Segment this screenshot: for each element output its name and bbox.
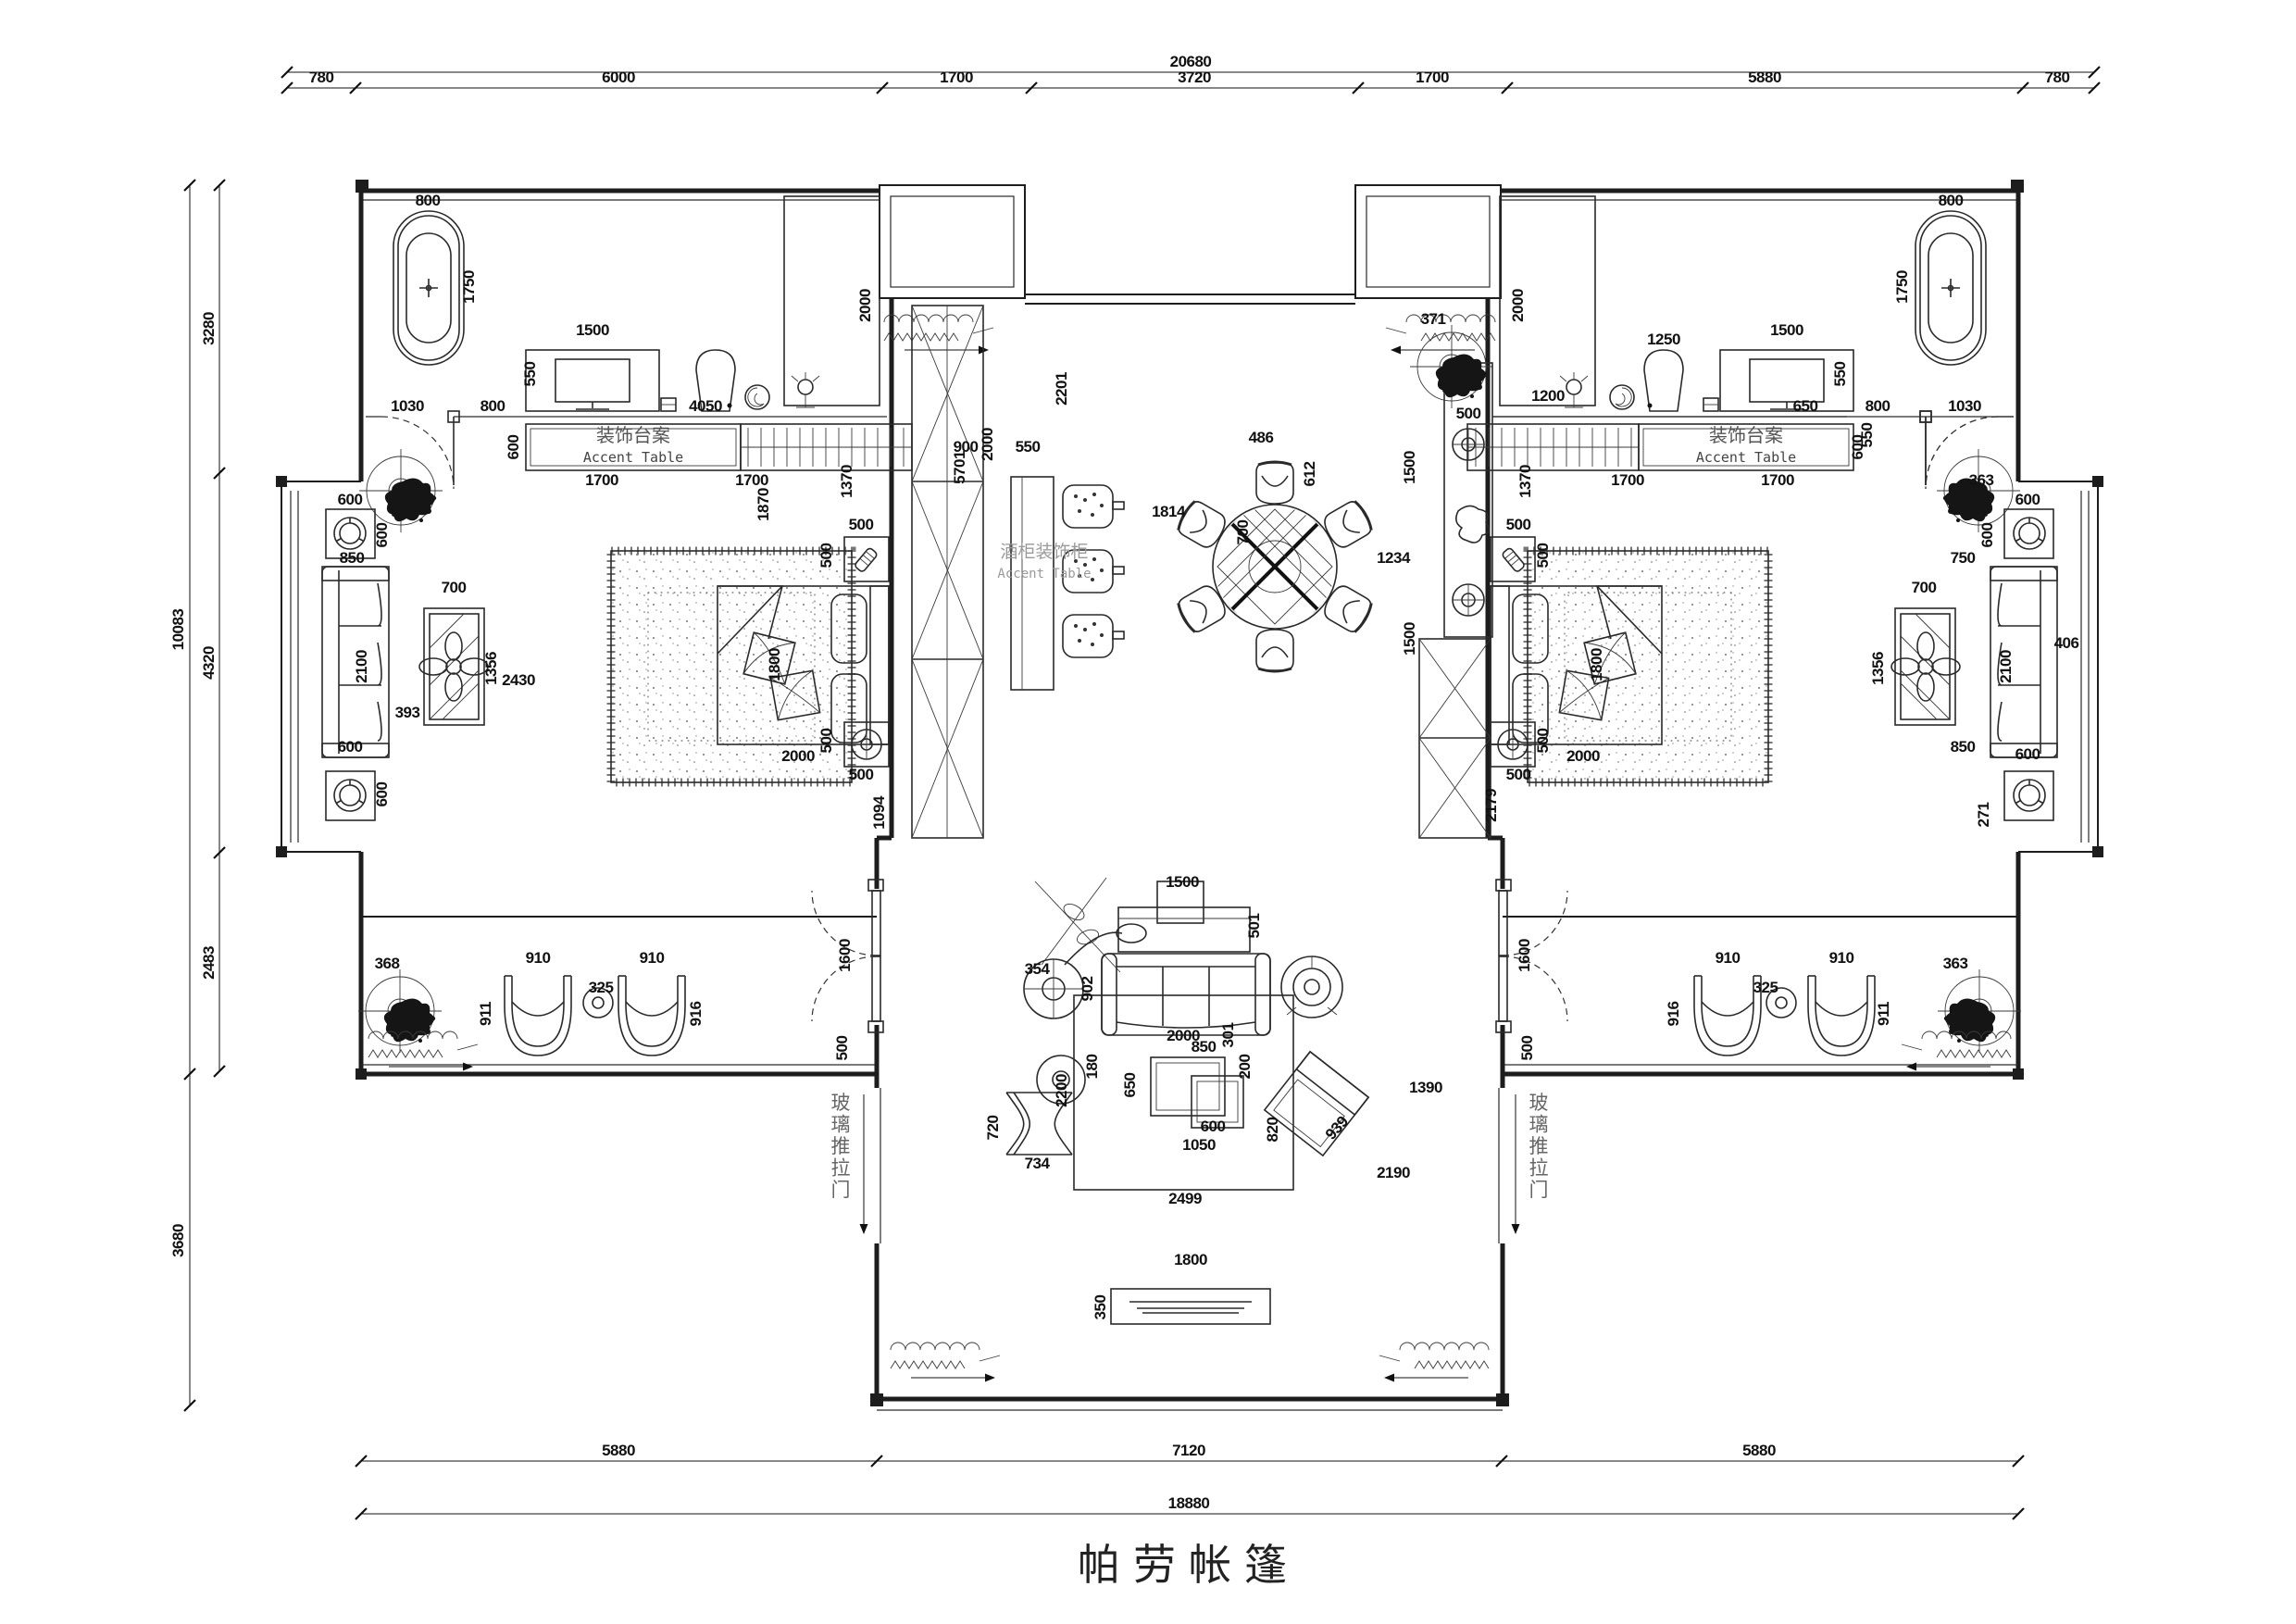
dim-label: 600 bbox=[338, 738, 363, 756]
dim-label: 2179 bbox=[1482, 789, 1500, 822]
dim-label: 910 bbox=[1716, 949, 1741, 967]
dim-label: 500 bbox=[849, 516, 874, 533]
dim-label: 600 bbox=[338, 491, 363, 508]
dim-label: 1500 bbox=[576, 321, 609, 339]
dim-label: 325 bbox=[589, 979, 614, 996]
room-label: 装饰台案 bbox=[1709, 424, 1783, 446]
dim-label: 1370 bbox=[1516, 465, 1534, 498]
dim-label: 1800 bbox=[1588, 648, 1605, 681]
dim-label: 3680 bbox=[169, 1224, 187, 1257]
dim-label: 720 bbox=[984, 1116, 1002, 1141]
dim-label: 6000 bbox=[602, 69, 635, 86]
dim-label: 2000 bbox=[781, 747, 815, 765]
dim-label: 500 bbox=[1518, 1036, 1536, 1061]
dim-label: 2499 bbox=[1168, 1190, 1202, 1207]
dim-label: 2100 bbox=[1997, 650, 2015, 683]
dim-label: 700 bbox=[442, 579, 467, 596]
dim-label: 1700 bbox=[735, 471, 768, 489]
dim-label: 750 bbox=[1951, 549, 1976, 567]
dim-label: 7120 bbox=[1172, 1442, 1205, 1459]
dim-label: 2000 bbox=[979, 428, 996, 461]
dim-label: 500 bbox=[849, 766, 874, 783]
drawing-title: 帕劳帐篷 bbox=[1078, 1540, 1300, 1590]
dim-label: 5880 bbox=[1748, 69, 1781, 86]
dim-label: 2201 bbox=[1053, 372, 1070, 406]
dim-label: 780 bbox=[309, 69, 334, 86]
dim-label: 1700 bbox=[1761, 471, 1794, 489]
dim-label: 1750 bbox=[1893, 270, 1911, 304]
dim-label: 1700 bbox=[940, 69, 973, 86]
dim-label: 1050 bbox=[1182, 1136, 1216, 1154]
dim-label: 910 bbox=[1829, 949, 1854, 967]
dim-label: 406 bbox=[2054, 634, 2079, 652]
dim-label: 1700 bbox=[585, 471, 618, 489]
dim-label: 600 bbox=[2015, 745, 2040, 763]
dim-label: 1370 bbox=[838, 465, 855, 498]
dim-label: 780 bbox=[2045, 69, 2070, 86]
dim-label: 1200 bbox=[1531, 387, 1565, 405]
dim-label: 600 bbox=[2015, 491, 2040, 508]
dim-label: 1500 bbox=[1770, 321, 1803, 339]
dim-label: 2430 bbox=[502, 671, 535, 689]
dim-label: 911 bbox=[1875, 1002, 1892, 1026]
room-label: Accent Table bbox=[1696, 449, 1796, 466]
dim-label: 550 bbox=[521, 362, 539, 387]
dim-label: 800 bbox=[1865, 397, 1890, 415]
dim-label: 1030 bbox=[1948, 397, 1981, 415]
dim-label: 1500 bbox=[1401, 622, 1418, 656]
dim-label: 1500 bbox=[1166, 873, 1199, 891]
dim-label: 800 bbox=[1939, 192, 1964, 209]
dim-label: 612 bbox=[1301, 462, 1318, 487]
dim-label: 1814 bbox=[1152, 503, 1186, 520]
dim-label: 850 bbox=[1192, 1038, 1217, 1056]
dim-label: 500 bbox=[1534, 543, 1552, 568]
dim-label: 600 bbox=[1978, 523, 1996, 548]
room-label: 玻璃推拉门 bbox=[831, 1092, 851, 1201]
dim-label: 820 bbox=[1264, 1118, 1281, 1143]
dim-label: 2100 bbox=[353, 650, 370, 683]
dim-label: 1390 bbox=[1409, 1079, 1442, 1096]
dim-label: 325 bbox=[1753, 979, 1778, 996]
dim-label: 500 bbox=[1506, 516, 1531, 533]
dim-label: 916 bbox=[1665, 1002, 1682, 1027]
dim-label: 734 bbox=[1025, 1155, 1051, 1172]
dim-label: 550 bbox=[1016, 438, 1041, 456]
dim-label: 500 bbox=[1456, 405, 1481, 422]
dim-label: 4320 bbox=[200, 646, 218, 680]
dim-label: 501 bbox=[1245, 914, 1263, 939]
room-label: 装饰台案 bbox=[596, 424, 670, 446]
dim-label: 271 bbox=[1975, 803, 1992, 828]
dim-label: 5880 bbox=[1742, 1442, 1776, 1459]
dim-label: 1356 bbox=[482, 652, 500, 685]
dim-label: 3280 bbox=[200, 312, 218, 345]
dim-label: 2000 bbox=[1566, 747, 1600, 765]
dim-label: 800 bbox=[480, 397, 505, 415]
dim-label: 600 bbox=[373, 523, 391, 548]
dim-label: 902 bbox=[1079, 977, 1096, 1002]
dim-label: 180 bbox=[1083, 1055, 1101, 1080]
dim-label: 600 bbox=[373, 782, 391, 807]
dim-label: 1600 bbox=[1516, 939, 1533, 972]
dim-label: 5701 bbox=[951, 451, 968, 484]
dim-label: 916 bbox=[687, 1002, 705, 1027]
room-label: 玻璃推拉门 bbox=[1529, 1092, 1549, 1201]
dim-label: 910 bbox=[640, 949, 665, 967]
dim-label: 350 bbox=[1092, 1295, 1109, 1320]
dim-label: 910 bbox=[526, 949, 551, 967]
dim-label: 10083 bbox=[169, 609, 187, 651]
dim-label: 2000 bbox=[1509, 289, 1527, 322]
dim-label: 800 bbox=[416, 192, 441, 209]
dim-label: 1030 bbox=[391, 397, 424, 415]
dim-label: 911 bbox=[477, 1002, 494, 1026]
dim-label: 363 bbox=[1943, 955, 1968, 972]
dim-label: 500 bbox=[817, 543, 835, 568]
dim-label: 650 bbox=[1793, 397, 1818, 415]
dim-label: 1800 bbox=[766, 648, 783, 681]
dim-label: 2483 bbox=[200, 946, 218, 980]
dim-label: 1250 bbox=[1647, 331, 1680, 348]
dim-label: 1750 bbox=[460, 270, 478, 304]
dim-label: 850 bbox=[1951, 738, 1976, 756]
dim-label: 900 bbox=[954, 438, 979, 456]
dim-label: 1500 bbox=[1401, 451, 1418, 484]
dim-label: 2190 bbox=[1377, 1164, 1410, 1181]
dim-label: 2200 bbox=[1053, 1074, 1070, 1107]
dim-label: 700 bbox=[1912, 579, 1937, 596]
dim-label: 500 bbox=[817, 729, 835, 754]
dim-label: 850 bbox=[340, 549, 365, 567]
dim-label: 500 bbox=[1534, 729, 1552, 754]
dim-label: 5880 bbox=[602, 1442, 635, 1459]
floor-plan-canvas: 2068078060001700372017005880780100833680… bbox=[0, 0, 2296, 1624]
dim-label: 1800 bbox=[1174, 1251, 1207, 1268]
room-label: 酒柜装饰柜 bbox=[1000, 542, 1088, 562]
dim-label: 393 bbox=[395, 704, 420, 721]
dim-label: 18880 bbox=[1168, 1494, 1210, 1512]
dim-label: 500 bbox=[1506, 766, 1531, 783]
dim-label: 550 bbox=[1831, 362, 1849, 387]
dim-label: 600 bbox=[505, 435, 522, 460]
dim-label: 3720 bbox=[1178, 69, 1211, 86]
dim-label: 1234 bbox=[1377, 549, 1411, 567]
dim-label: 371 bbox=[1421, 310, 1446, 328]
dim-label: 486 bbox=[1249, 429, 1274, 446]
paper-background bbox=[0, 0, 2296, 1624]
dim-label: 700 bbox=[1234, 520, 1252, 545]
dim-label: 1600 bbox=[836, 939, 854, 972]
room-label: Accent Table bbox=[997, 567, 1091, 581]
dim-label: 368 bbox=[375, 955, 400, 972]
dim-label: 1870 bbox=[755, 488, 772, 521]
dim-label: 354 bbox=[1025, 960, 1051, 978]
dim-label: 200 bbox=[1236, 1055, 1254, 1080]
dim-label: 1094 bbox=[870, 795, 888, 830]
floor-plan-page: 2068078060001700372017005880780100833680… bbox=[0, 0, 2296, 1624]
dim-label: 2000 bbox=[856, 289, 874, 322]
room-label: Accent Table bbox=[583, 449, 683, 466]
dim-label: 1700 bbox=[1611, 471, 1644, 489]
dim-label: 600 bbox=[1849, 435, 1866, 460]
dim-label: 301 bbox=[1219, 1023, 1237, 1048]
dim-label: 363 bbox=[1969, 471, 1994, 489]
dim-label: 1700 bbox=[1416, 69, 1449, 86]
dim-label: 650 bbox=[1121, 1073, 1139, 1098]
dim-label: 1356 bbox=[1869, 652, 1887, 685]
dim-label: 500 bbox=[833, 1036, 851, 1061]
dim-label: 4050 bbox=[689, 397, 722, 415]
dim-label: 600 bbox=[1201, 1118, 1226, 1135]
